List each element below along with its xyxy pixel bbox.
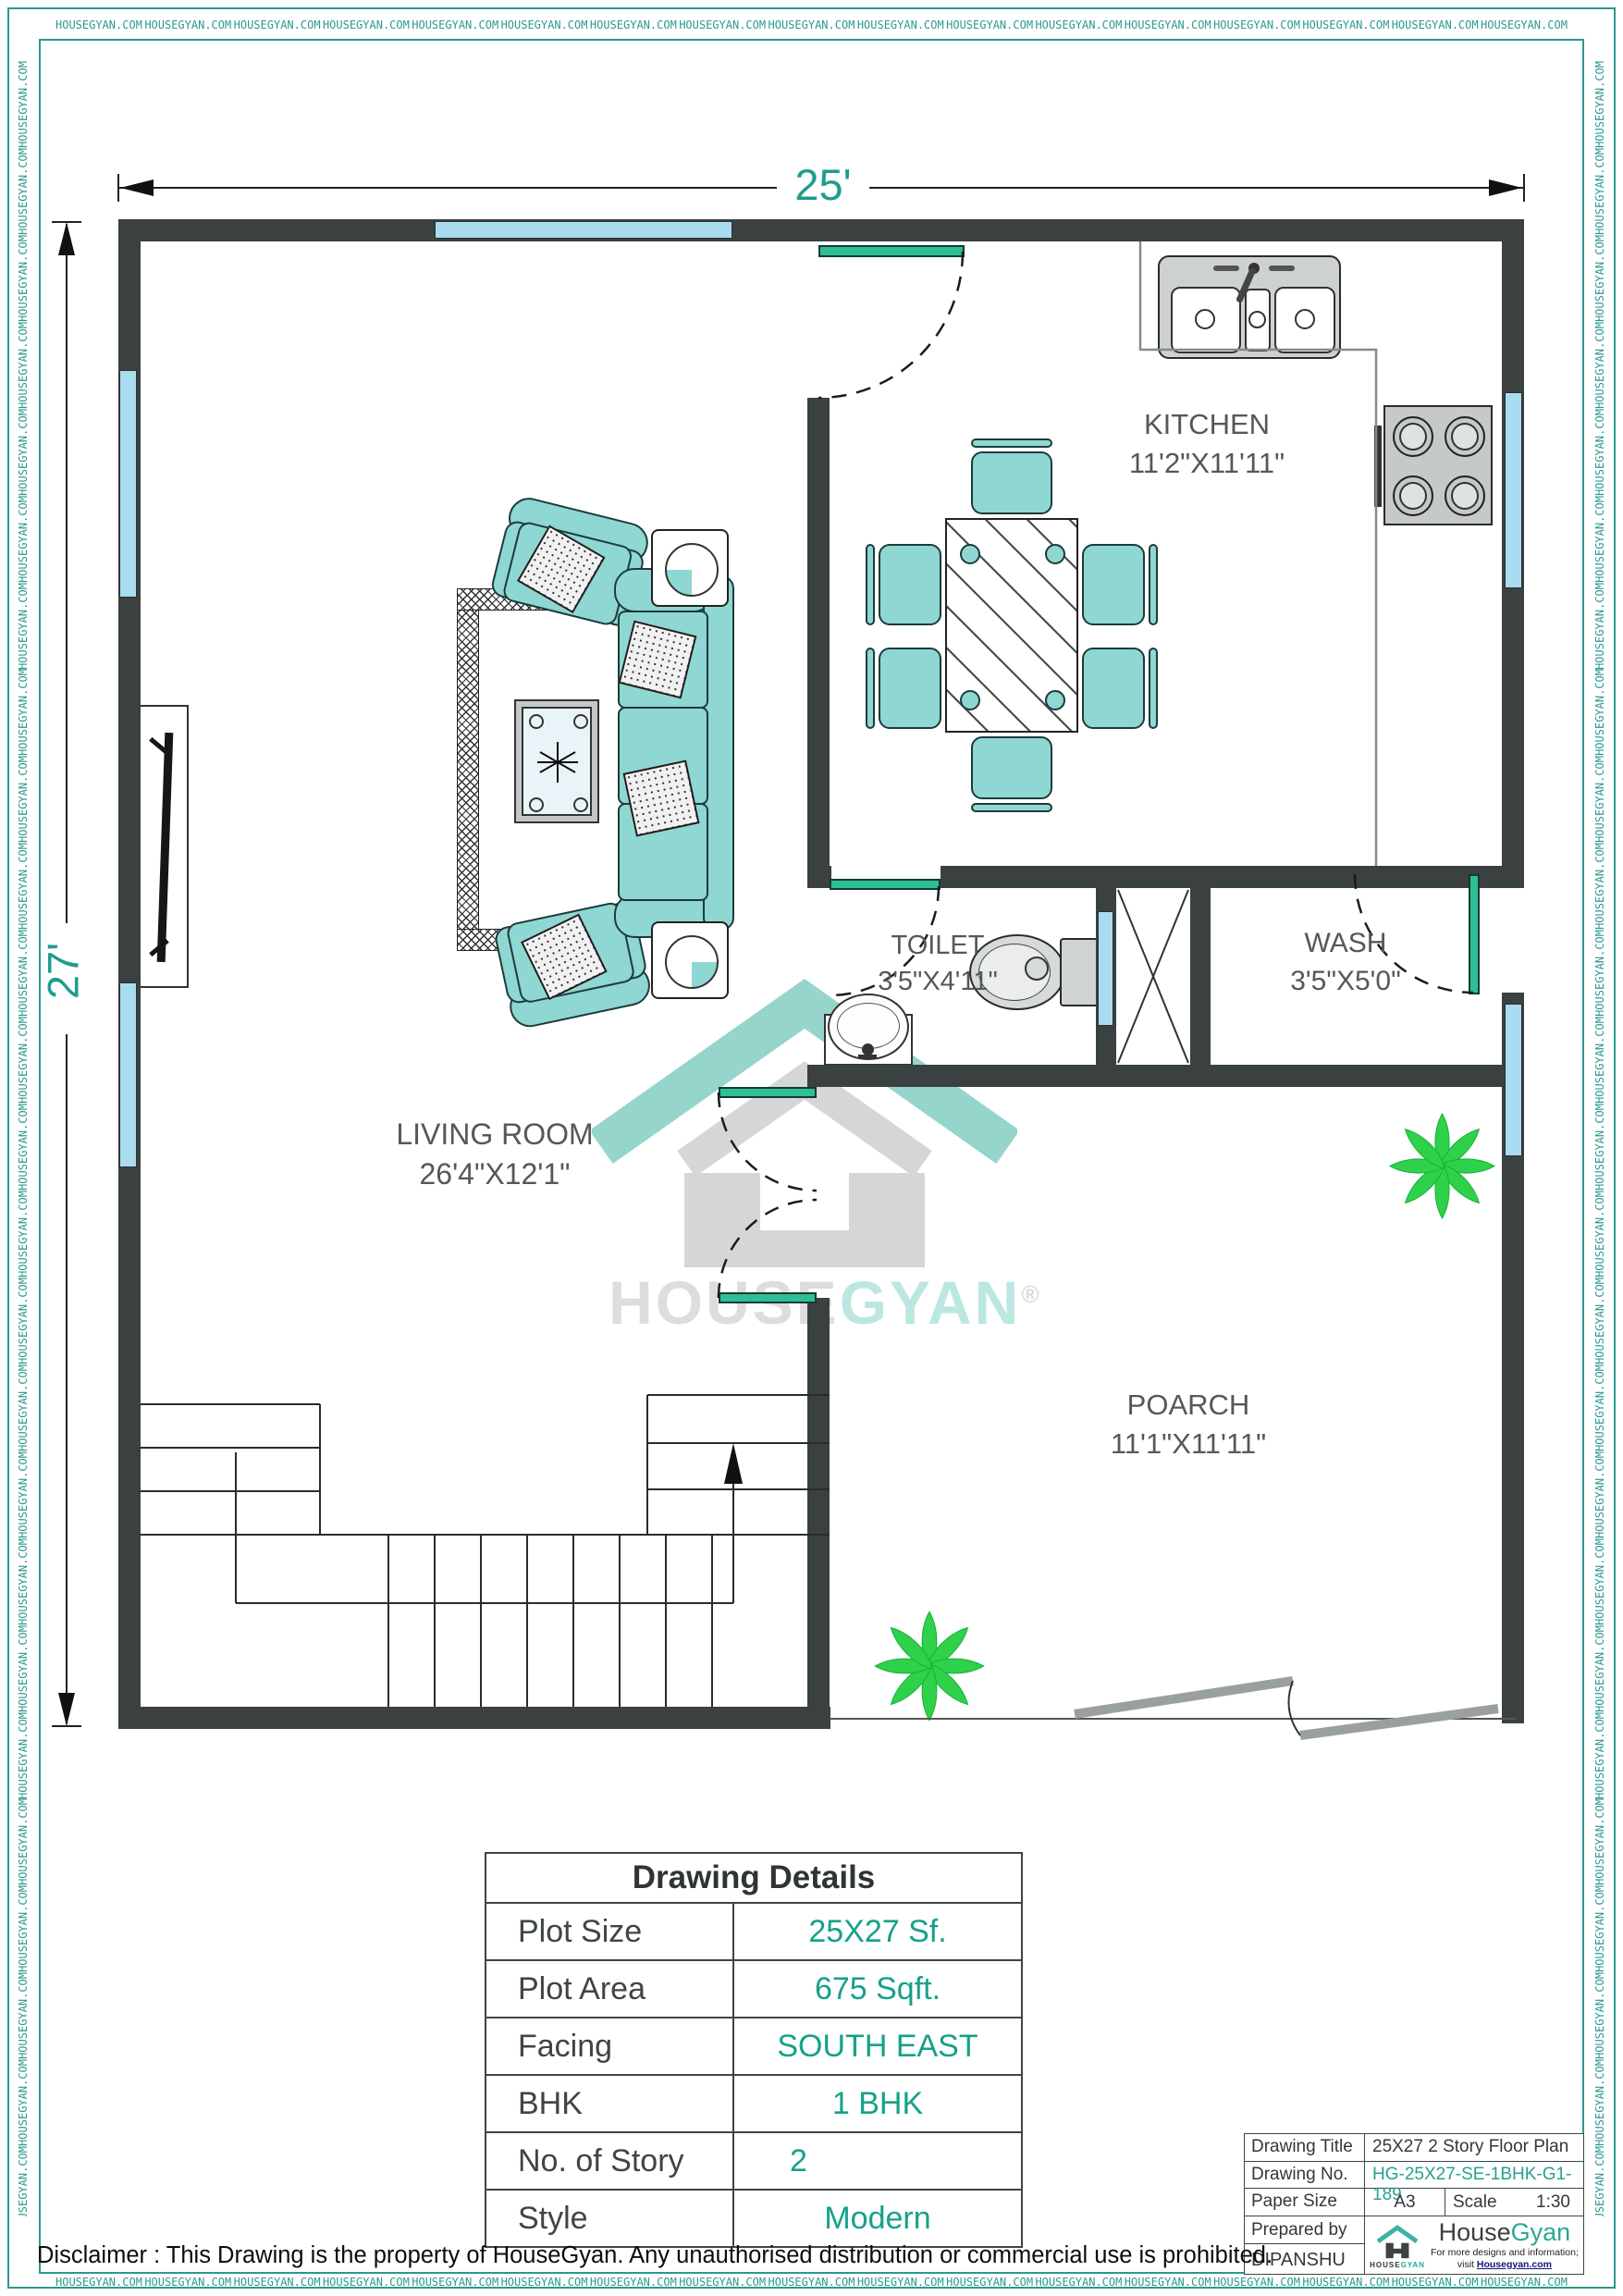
floor-plan-sheet: HOUSEGYAN.COMHOUSEGYAN.COMHOUSEGYAN.COMH… — [0, 0, 1623, 2296]
detail-label: BHK — [486, 2076, 734, 2131]
logo-text-gyan: GYAN — [1401, 2261, 1425, 2269]
paper-size-value: A3 — [1365, 2189, 1445, 2216]
stair-direction-arrow — [724, 1443, 743, 1484]
border-watermark-item: HOUSEGYAN.COM — [1481, 19, 1568, 31]
border-watermark-item: HOUSEGYAN.COM — [17, 1104, 30, 1191]
border-watermark-item: HOUSEGYAN.COM — [1481, 2276, 1568, 2289]
border-watermark-item: HOUSEGYAN.COM — [17, 756, 30, 843]
border-watermark-item: HOUSEGYAN.COM — [17, 2146, 30, 2216]
table-row: BHK 1 BHK — [486, 2076, 1021, 2133]
border-watermark-item: HOUSEGYAN.COM — [1302, 2276, 1389, 2289]
border-watermark-item: HOUSEGYAN.COM — [679, 2276, 766, 2289]
border-watermark-item: HOUSEGYAN.COM — [768, 2276, 855, 2289]
border-watermark-item: HOUSEGYAN.COM — [1213, 2276, 1300, 2289]
border-watermark-item: HOUSEGYAN.COM — [412, 19, 498, 31]
border-watermark-item: HOUSEGYAN.COM — [857, 2276, 944, 2289]
title-block-row: Drawing Title 25X27 2 Story Floor Plan — [1245, 2134, 1583, 2162]
border-watermark-item: HOUSEGYAN.COM — [17, 148, 30, 235]
drawing-details-table: Drawing Details Plot Size 25X27 Sf. Plot… — [485, 1852, 1023, 2248]
room-label-wash: WASH 3'5"X5'0" — [1239, 925, 1452, 1000]
scale-value: 1:30 — [1536, 2192, 1570, 2213]
detail-label: Plot Size — [486, 1904, 734, 1959]
border-watermark-item: HOUSEGYAN.COM — [17, 1451, 30, 1538]
detail-value: 1 BHK — [734, 2076, 1021, 2131]
room-name: TOILET — [832, 928, 1043, 964]
border-watermark-item: HOUSEGYAN.COM — [17, 1278, 30, 1364]
brand-tagline2: visit — [1457, 2259, 1477, 2270]
border-watermark-item: HOUSEGYAN.COM — [1593, 1104, 1606, 1191]
detail-value: 2 — [734, 2133, 1021, 2189]
border-watermark-item: HOUSEGYAN.COM — [1593, 2146, 1606, 2216]
border-watermark-item: HOUSEGYAN.COM — [17, 1972, 30, 2059]
border-watermark-item: HOUSEGYAN.COM — [501, 19, 588, 31]
border-watermark-item: HOUSEGYAN.COM — [501, 2276, 588, 2289]
border-watermark-item: HOUSEGYAN.COM — [17, 1712, 30, 1799]
border-watermark-item: HOUSEGYAN.COM — [17, 496, 30, 583]
gate-curve — [1289, 1681, 1301, 1735]
border-watermark-item: HOUSEGYAN.COM — [17, 843, 30, 930]
table-row: Plot Size 25X27 Sf. — [486, 1904, 1021, 1961]
brand-name-gyan: Gyan — [1511, 2218, 1571, 2246]
border-watermark-item: HOUSEGYAN.COM — [17, 1538, 30, 1625]
detail-value: 25X27 Sf. — [734, 1904, 1021, 1959]
gate-bar — [1300, 1709, 1498, 1735]
border-watermark-item: HOUSEGYAN.COM — [857, 19, 944, 31]
border-watermark-item: HOUSEGYAN.COM — [17, 1798, 30, 1885]
table-row: Plot Area 675 Sqft. — [486, 1961, 1021, 2018]
border-watermark-left: HOUSEGYAN.COMHOUSEGYAN.COMHOUSEGYAN.COMH… — [11, 61, 35, 2216]
border-watermark-item: HOUSEGYAN.COM — [1593, 61, 1606, 148]
room-size: 3'5"X5'0" — [1239, 963, 1452, 1001]
border-watermark-item: HOUSEGYAN.COM — [1392, 2276, 1479, 2289]
border-watermark-bottom: HOUSEGYAN.COMHOUSEGYAN.COMHOUSEGYAN.COMH… — [55, 2273, 1568, 2291]
border-watermark-item: HOUSEGYAN.COM — [1593, 1625, 1606, 1712]
border-watermark-item: HOUSEGYAN.COM — [946, 2276, 1033, 2289]
detail-value: Modern — [734, 2191, 1021, 2246]
room-name: POARCH — [1036, 1386, 1341, 1425]
border-watermark-item: HOUSEGYAN.COM — [1593, 1364, 1606, 1451]
border-watermark-right: HOUSEGYAN.COMHOUSEGYAN.COMHOUSEGYAN.COMH… — [1588, 61, 1612, 2216]
border-watermark-item: HOUSEGYAN.COM — [1302, 19, 1389, 31]
border-watermark-item: HOUSEGYAN.COM — [17, 1017, 30, 1104]
border-watermark-item: HOUSEGYAN.COM — [1593, 1712, 1606, 1799]
border-watermark-item: HOUSEGYAN.COM — [17, 409, 30, 496]
table-row: Style Modern — [486, 2191, 1021, 2246]
table-row: Facing SOUTH EAST — [486, 2018, 1021, 2076]
border-watermark-item: HOUSEGYAN.COM — [590, 2276, 677, 2289]
border-watermark-item: HOUSEGYAN.COM — [1593, 1017, 1606, 1104]
border-watermark-item: HOUSEGYAN.COM — [17, 1625, 30, 1712]
border-watermark-item: HOUSEGYAN.COM — [1593, 843, 1606, 930]
border-watermark-item: HOUSEGYAN.COM — [55, 19, 142, 31]
field-label: Drawing Title — [1245, 2134, 1365, 2161]
title-block-row: Drawing No. HG-25X27-SE-1BHK-G1-189 — [1245, 2162, 1583, 2189]
border-watermark-item: HOUSEGYAN.COM — [1593, 583, 1606, 670]
housegyan-logo-icon — [1377, 2222, 1418, 2259]
border-watermark-item: HOUSEGYAN.COM — [1593, 235, 1606, 322]
border-watermark-item: HOUSEGYAN.COM — [1593, 1798, 1606, 1885]
field-label: Drawing No. — [1245, 2162, 1365, 2188]
border-watermark-item: HOUSEGYAN.COM — [323, 2276, 410, 2289]
border-watermark-item: HOUSEGYAN.COM — [144, 19, 231, 31]
field-label: Paper Size — [1245, 2189, 1365, 2216]
table-row: No. of Story 2 — [486, 2133, 1021, 2191]
room-name: WASH — [1239, 925, 1452, 963]
border-watermark-item: HOUSEGYAN.COM — [1125, 19, 1211, 31]
border-watermark-item: HOUSEGYAN.COM — [234, 19, 321, 31]
title-block-row: Paper Size A3 Scale 1:30 — [1245, 2189, 1583, 2216]
border-watermark-item: HOUSEGYAN.COM — [1125, 2276, 1211, 2289]
drawing-no-value: HG-25X27-SE-1BHK-G1-189 — [1365, 2162, 1583, 2188]
disclaimer-text: Disclaimer : This Drawing is the propert… — [37, 2242, 1273, 2269]
border-watermark-item: HOUSEGYAN.COM — [1593, 1278, 1606, 1364]
border-watermark-item: HOUSEGYAN.COM — [323, 19, 410, 31]
border-watermark-item: HOUSEGYAN.COM — [1593, 669, 1606, 756]
detail-value: 675 Sqft. — [734, 1961, 1021, 2017]
detail-label: Facing — [486, 2018, 734, 2074]
room-label-kitchen: KITCHEN 11'2"X11'11" — [1054, 405, 1359, 483]
border-watermark-top: HOUSEGYAN.COMHOUSEGYAN.COMHOUSEGYAN.COMH… — [55, 14, 1568, 36]
detail-label: No. of Story — [486, 2133, 734, 2189]
brand-name-house: House — [1439, 2218, 1511, 2246]
border-watermark-item: HOUSEGYAN.COM — [412, 2276, 498, 2289]
border-watermark-item: HOUSEGYAN.COM — [1593, 2059, 1606, 2146]
border-watermark-item: HOUSEGYAN.COM — [1035, 19, 1122, 31]
border-watermark-item: HOUSEGYAN.COM — [1593, 756, 1606, 843]
border-watermark-item: HOUSEGYAN.COM — [1035, 2276, 1122, 2289]
border-watermark-item: HOUSEGYAN.COM — [1392, 19, 1479, 31]
border-watermark-item: HOUSEGYAN.COM — [17, 930, 30, 1017]
room-size: 26'4"X12'1" — [328, 1154, 661, 1194]
details-title: Drawing Details — [486, 1854, 1021, 1904]
room-label-porch: POARCH 11'1"X11'11" — [1036, 1386, 1341, 1463]
gate-bar — [1075, 1681, 1293, 1714]
border-watermark-item: HOUSEGYAN.COM — [17, 235, 30, 322]
room-name: KITCHEN — [1054, 405, 1359, 444]
shaft-cross — [1118, 890, 1188, 1063]
prepared-by-label: Prepared by — [1245, 2216, 1364, 2244]
detail-label: Style — [486, 2191, 734, 2246]
border-watermark-item: HOUSEGYAN.COM — [1593, 148, 1606, 235]
scale-label: Scale — [1453, 2192, 1497, 2213]
border-watermark-item: HOUSEGYAN.COM — [590, 19, 677, 31]
detail-label: Plot Area — [486, 1961, 734, 2017]
dimension-label-width: 25' — [758, 159, 888, 210]
room-size: 11'1"X11'11" — [1036, 1425, 1341, 1463]
room-size: 11'2"X11'11" — [1054, 444, 1359, 483]
border-watermark-item: HOUSEGYAN.COM — [17, 2059, 30, 2146]
border-watermark-item: HOUSEGYAN.COM — [17, 583, 30, 670]
border-watermark-item: HOUSEGYAN.COM — [1593, 322, 1606, 409]
brand-tagline: For more designs and information; — [1431, 2247, 1579, 2258]
border-watermark-item: HOUSEGYAN.COM — [234, 2276, 321, 2289]
title-block: Drawing Title 25X27 2 Story Floor Plan D… — [1244, 2133, 1584, 2275]
room-label-living: LIVING ROOM 26'4"X12'1" — [328, 1115, 661, 1194]
border-watermark-item: HOUSEGYAN.COM — [17, 669, 30, 756]
border-watermark-item: HOUSEGYAN.COM — [17, 61, 30, 148]
border-watermark-item: HOUSEGYAN.COM — [1593, 496, 1606, 583]
kitchen-counter-line — [1140, 241, 1376, 866]
border-watermark-item: HOUSEGYAN.COM — [1593, 1191, 1606, 1278]
border-watermark-item: HOUSEGYAN.COM — [17, 1885, 30, 1972]
border-watermark-item: HOUSEGYAN.COM — [679, 19, 766, 31]
border-watermark-item: HOUSEGYAN.COM — [1213, 19, 1300, 31]
border-watermark-item: HOUSEGYAN.COM — [1593, 1538, 1606, 1625]
drawing-title-value: 25X27 2 Story Floor Plan — [1365, 2134, 1583, 2161]
border-watermark-item: HOUSEGYAN.COM — [768, 19, 855, 31]
border-watermark-item: HOUSEGYAN.COM — [1593, 1885, 1606, 1972]
border-watermark-item: HOUSEGYAN.COM — [55, 2276, 142, 2289]
staircase — [141, 1395, 830, 1707]
room-label-toilet: TOILET 3'5"X4'11" — [832, 928, 1043, 1000]
border-watermark-item: HOUSEGYAN.COM — [17, 1364, 30, 1451]
border-watermark-item: HOUSEGYAN.COM — [1593, 1972, 1606, 2059]
room-size: 3'5"X4'11" — [832, 964, 1043, 1000]
border-watermark-item: HOUSEGYAN.COM — [1593, 409, 1606, 496]
border-watermark-item: HOUSEGYAN.COM — [946, 19, 1033, 31]
brand-logo-cell: HOUSEGYAN HouseGyan For more designs and… — [1365, 2216, 1583, 2274]
border-watermark-item: HOUSEGYAN.COM — [17, 1191, 30, 1278]
border-watermark-item: HOUSEGYAN.COM — [17, 322, 30, 409]
border-watermark-item: HOUSEGYAN.COM — [1593, 930, 1606, 1017]
border-watermark-item: HOUSEGYAN.COM — [1593, 1451, 1606, 1538]
brand-link[interactable]: Housegyan.com — [1477, 2259, 1552, 2270]
logo-text-house: HOUSE — [1370, 2261, 1400, 2269]
dimension-label-height: 27' — [38, 897, 89, 1045]
border-watermark-item: HOUSEGYAN.COM — [144, 2276, 231, 2289]
detail-value: SOUTH EAST — [734, 2018, 1021, 2074]
room-name: LIVING ROOM — [328, 1115, 661, 1154]
